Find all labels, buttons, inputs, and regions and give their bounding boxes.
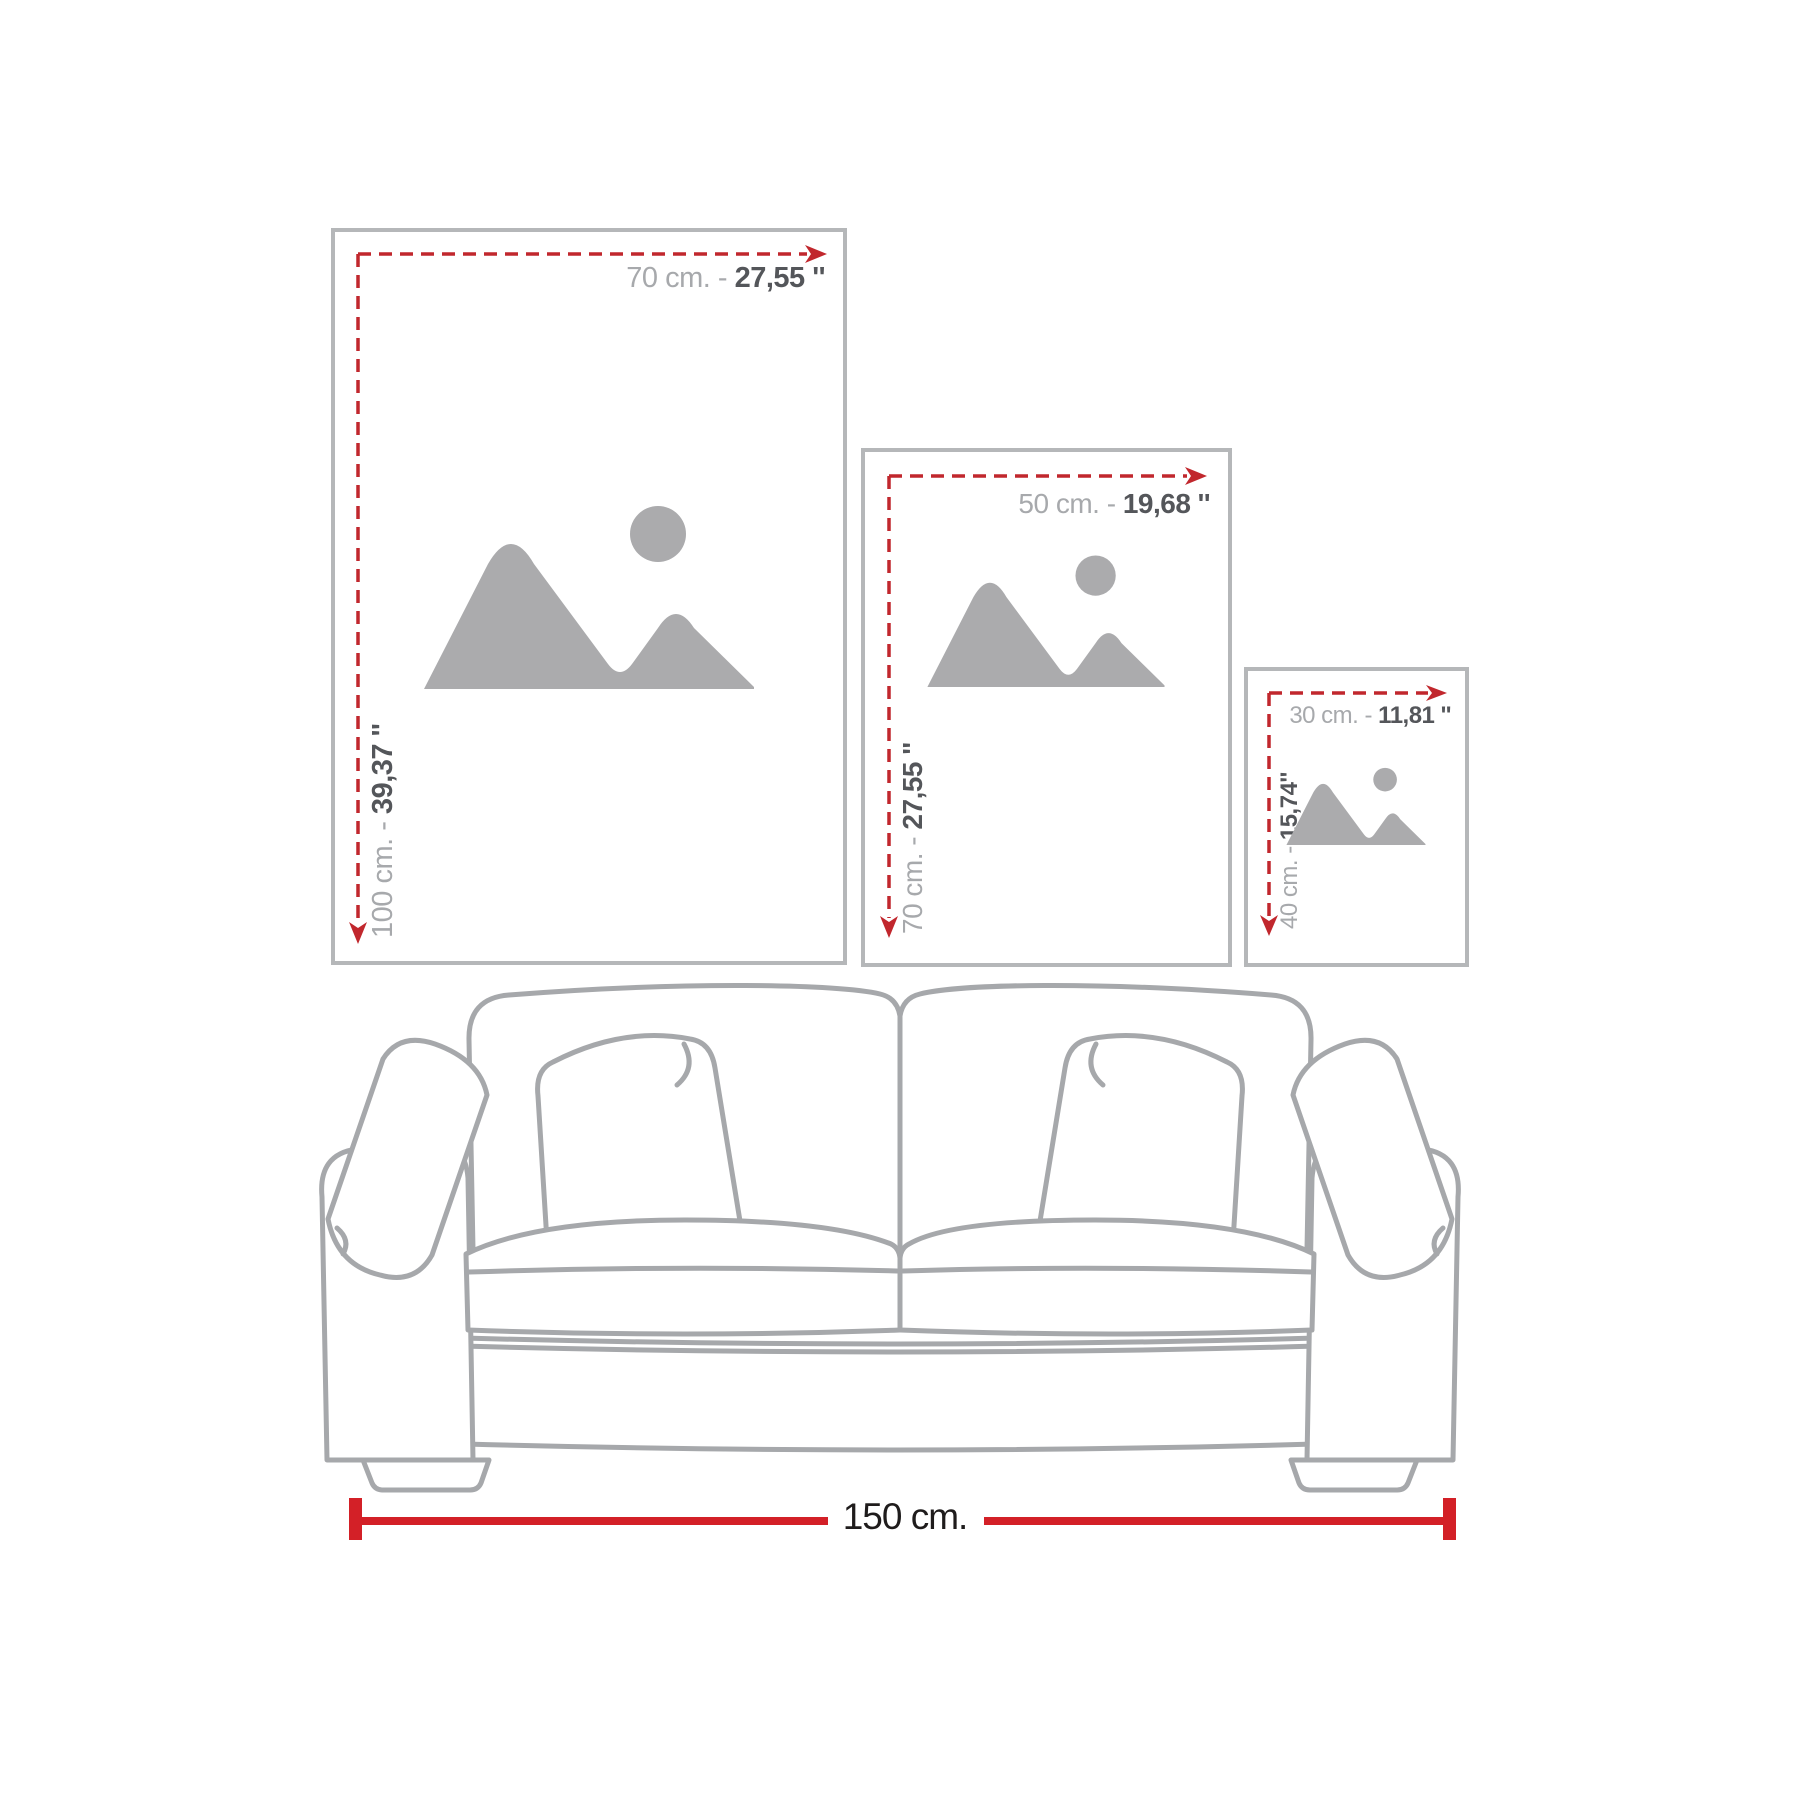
sofa-seat-left	[466, 1220, 900, 1334]
image-placeholder-icon	[1286, 767, 1426, 845]
arrow-right-icon	[805, 245, 827, 263]
height-label-medium: 70 cm. - 27,55 ''	[899, 742, 927, 934]
arrow-down-icon	[349, 922, 367, 944]
poster-frame-large: 70 cm. - 27,55 '' 100 cm. - 39,37 ''	[331, 228, 847, 965]
image-placeholder-icon	[927, 554, 1165, 687]
width-label-large: 70 cm. - 27,55 ''	[626, 264, 825, 293]
arrow-down-icon	[880, 916, 898, 938]
width-label-small: 30 cm. - 11,81 ''	[1289, 704, 1451, 728]
arrow-right-icon	[1426, 685, 1447, 701]
sofa-illustration	[285, 982, 1495, 1502]
sofa-width-label: 150 cm.	[820, 1492, 990, 1542]
sofa-seat-right	[900, 1220, 1314, 1334]
poster-frame-medium: 50 cm. - 19,68 '' 70 cm. - 27,55 ''	[861, 448, 1232, 967]
sofa-foot-right	[1291, 1460, 1417, 1490]
sofa-base	[461, 1346, 1319, 1450]
dimension-line-left	[362, 1517, 828, 1525]
sofa-foot-left	[363, 1460, 489, 1490]
width-label-medium: 50 cm. - 19,68 ''	[1018, 490, 1210, 518]
arrow-right-icon	[1185, 467, 1207, 485]
height-label-large: 100 cm. - 39,37 ''	[369, 724, 398, 938]
dimension-endcap-right	[1443, 1498, 1456, 1540]
size-guide-diagram: 70 cm. - 27,55 '' 100 cm. - 39,37 '' 50 …	[0, 0, 1800, 1800]
dimension-endcap-left	[349, 1498, 362, 1540]
dimension-line-right	[984, 1517, 1443, 1525]
image-placeholder-icon	[424, 504, 754, 689]
poster-frame-small: 30 cm. - 11,81 '' 40 cm. - 15,74''	[1244, 667, 1469, 967]
sofa-base-rail	[463, 1338, 1317, 1344]
